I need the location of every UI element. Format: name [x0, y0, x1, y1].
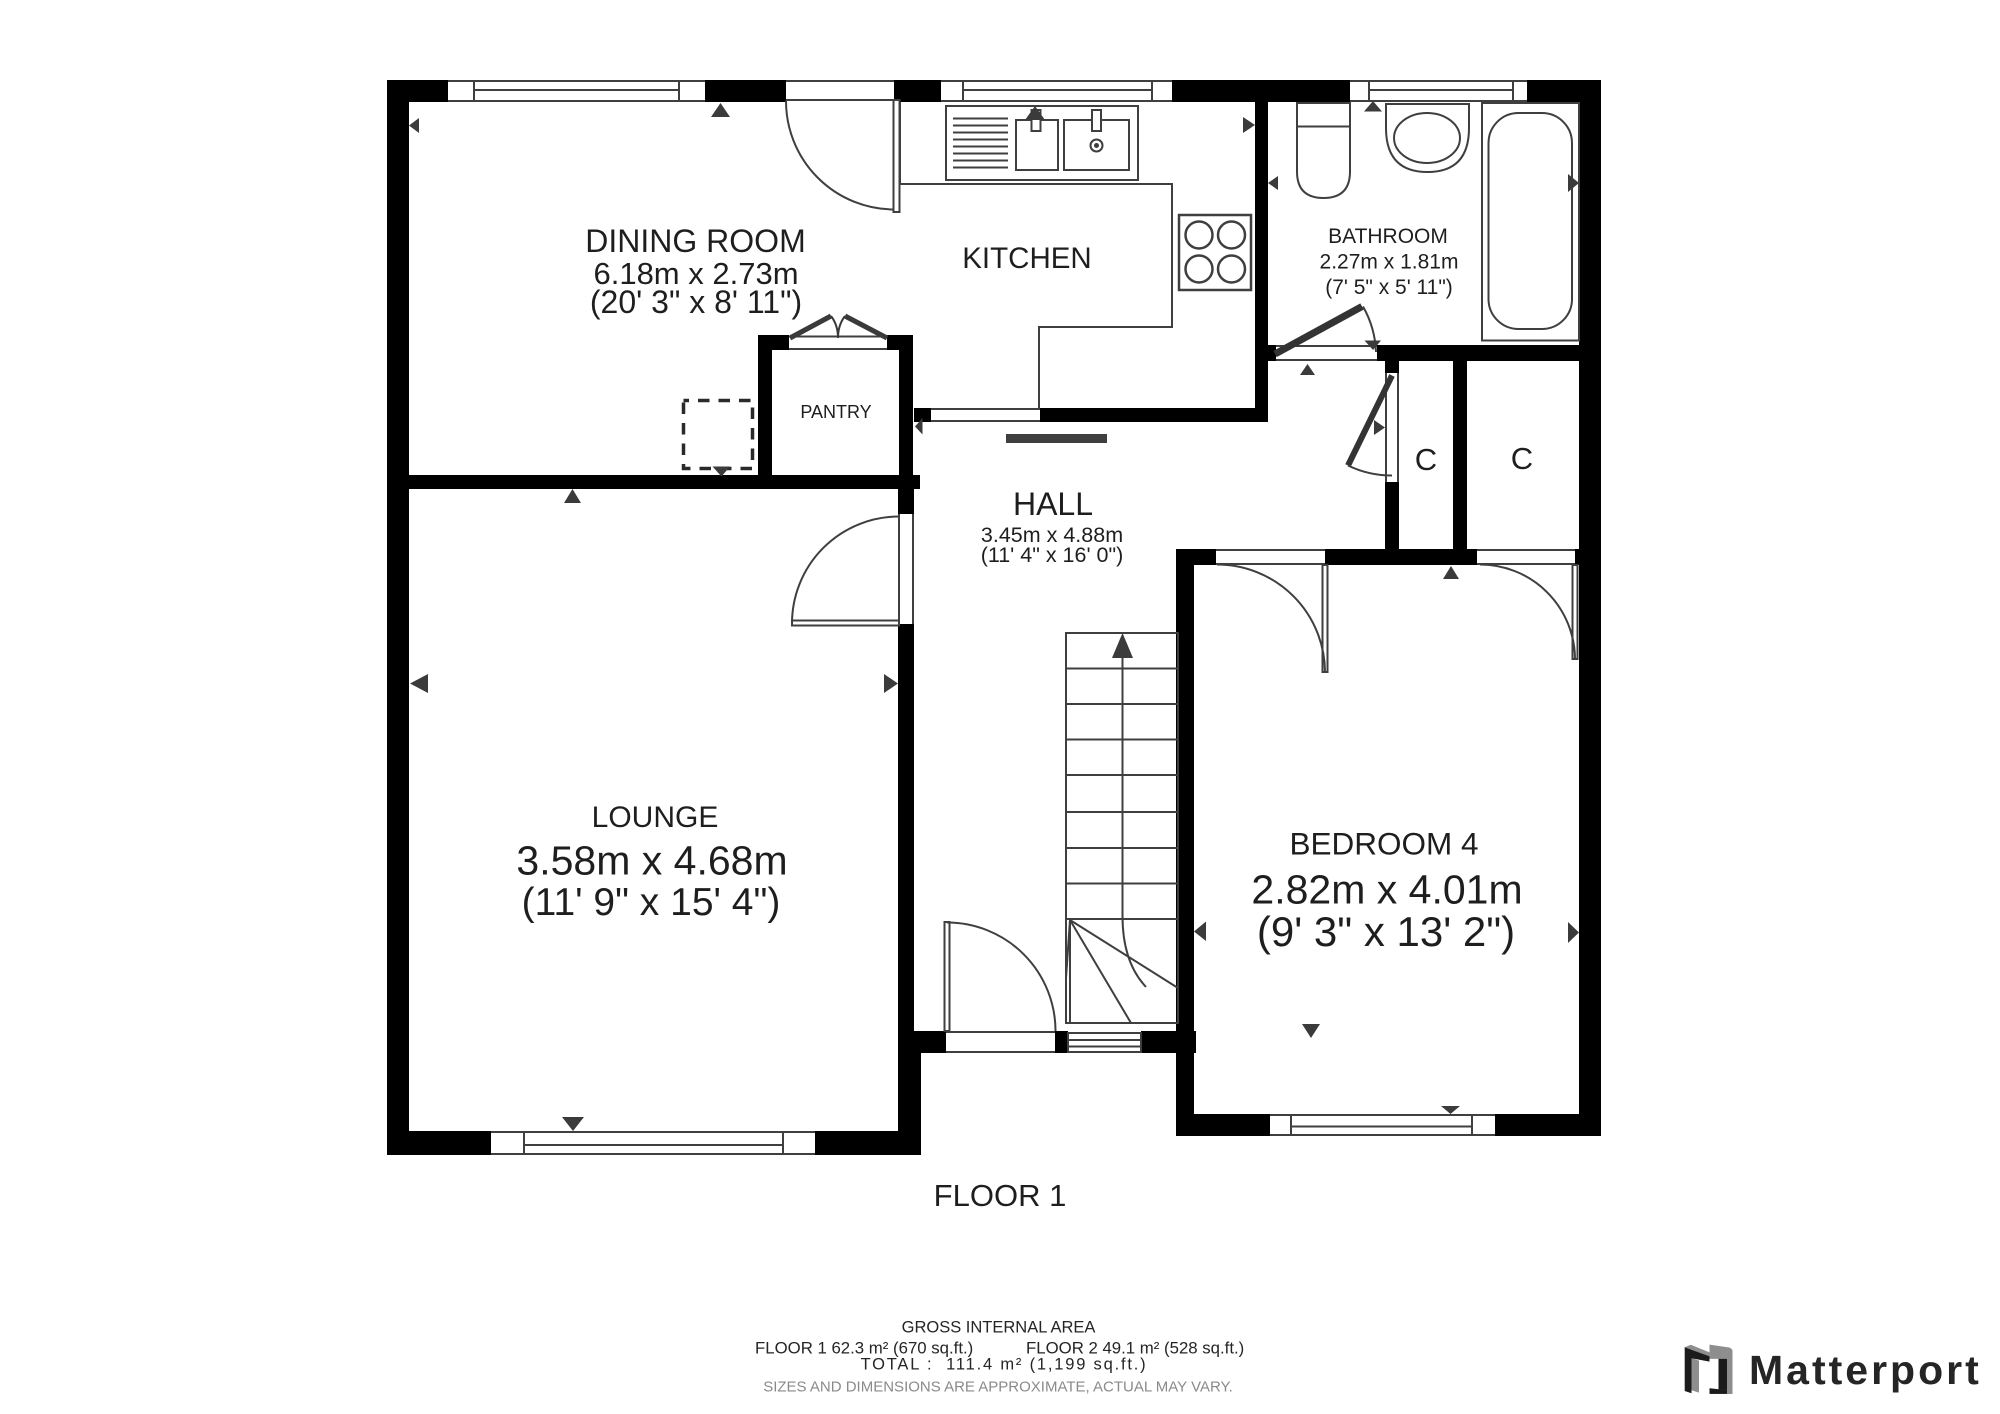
svg-text:FLOOR 1: FLOOR 1 — [934, 1178, 1067, 1213]
svg-text:BEDROOM 4: BEDROOM 4 — [1289, 826, 1478, 862]
svg-text:TOTAL : 111.4 m² (1,199 sq.ft: TOTAL : 111.4 m² (1,199 sq.ft.) — [861, 1356, 1148, 1374]
svg-text:HALL: HALL — [1013, 486, 1093, 522]
svg-text:PANTRY: PANTRY — [800, 402, 871, 422]
svg-text:3.58m x 4.68m: 3.58m x 4.68m — [516, 838, 787, 884]
svg-text:(20' 3" x 8' 11"): (20' 3" x 8' 11") — [590, 284, 802, 320]
svg-text:BATHROOM: BATHROOM — [1328, 225, 1448, 248]
svg-text:(9' 3" x 13' 2"): (9' 3" x 13' 2") — [1257, 908, 1515, 955]
svg-text:KITCHEN: KITCHEN — [962, 242, 1091, 275]
svg-text:LOUNGE: LOUNGE — [592, 801, 719, 834]
svg-text:2.27m x 1.81m: 2.27m x 1.81m — [1320, 251, 1459, 274]
svg-text:C: C — [1511, 441, 1533, 476]
svg-text:(7' 5" x 5' 11"): (7' 5" x 5' 11") — [1325, 276, 1453, 299]
svg-text:(11' 4" x 16' 0"): (11' 4" x 16' 0") — [981, 543, 1124, 567]
svg-text:SIZES AND DIMENSIONS ARE APPRO: SIZES AND DIMENSIONS ARE APPROXIMATE, AC… — [763, 1379, 1233, 1396]
svg-text:DINING ROOM: DINING ROOM — [585, 223, 805, 259]
svg-text:C: C — [1415, 442, 1437, 477]
svg-text:Matterport: Matterport — [1749, 1347, 1982, 1393]
svg-text:GROSS INTERNAL AREA: GROSS INTERNAL AREA — [902, 1319, 1096, 1337]
svg-text:2.82m x 4.01m: 2.82m x 4.01m — [1251, 867, 1522, 913]
svg-text:(11' 9" x 15' 4"): (11' 9" x 15' 4") — [522, 881, 781, 924]
